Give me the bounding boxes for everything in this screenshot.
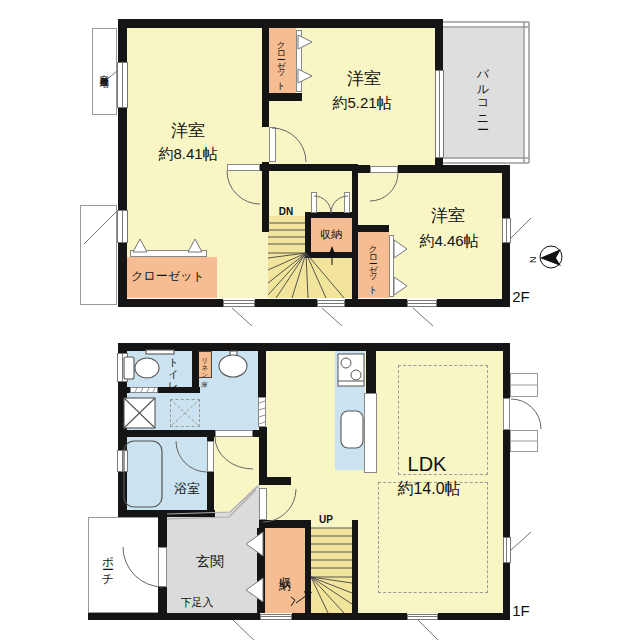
closet-left-front: [130, 250, 207, 257]
wall: [118, 510, 215, 517]
wall: [118, 243, 127, 306]
wall: [255, 299, 317, 307]
ldk-dashed-area-2: [378, 482, 488, 593]
door-leaf: [370, 166, 398, 173]
wall: [118, 343, 127, 353]
closet-446-label: クローゼット: [368, 238, 378, 289]
window: [502, 218, 511, 243]
wall: [292, 613, 407, 620]
wall: [262, 93, 302, 101]
window: [435, 70, 444, 158]
wall: [118, 19, 443, 28]
storage-1f-label: 収納: [277, 567, 291, 571]
exterior-steps-upper: [510, 373, 538, 397]
window: [407, 614, 438, 620]
ldk-size: 約14.0帖: [397, 480, 460, 498]
wall: [158, 587, 167, 613]
wall: [366, 343, 376, 393]
kitchen-counter-bar: [364, 393, 377, 473]
wall: [435, 28, 443, 70]
closet-left-label: クローゼット: [131, 270, 204, 284]
window: [117, 62, 128, 108]
wall: [398, 165, 510, 173]
window: [317, 300, 345, 307]
shoe-box-label: 下足入: [181, 596, 214, 609]
closet-top-label: クローゼット: [276, 34, 286, 85]
wall: [257, 528, 265, 613]
stairs-dn-label: DN: [279, 206, 293, 218]
wall: [438, 613, 510, 620]
storage-2f-label: 収納: [320, 228, 342, 241]
wall: [259, 477, 291, 485]
door-leaf: [503, 398, 510, 430]
wall: [260, 164, 356, 171]
floor-plan: N 洋室 約8.41帖 洋室 約5.21帖 洋室 約4.46帖 バルコニー クロ…: [0, 0, 640, 640]
room-446-name: 洋室: [431, 206, 465, 226]
floor1-label: 1F: [512, 602, 530, 619]
room-521-size: 約5.21帖: [332, 94, 391, 111]
outdoor-unit-label: 室外機置場: [99, 68, 109, 73]
wall: [88, 613, 260, 620]
door-leaf: [207, 441, 214, 472]
wall: [305, 252, 352, 258]
porch-label: ポーチ: [100, 547, 114, 580]
wall: [503, 343, 510, 398]
balcony-label: バルコニー: [475, 61, 489, 126]
room-446-size: 約4.46帖: [419, 232, 478, 249]
door-leaf: [158, 547, 167, 587]
wall: [118, 387, 130, 393]
window: [117, 210, 128, 243]
floor2-label: 2F: [512, 288, 530, 305]
window: [117, 353, 128, 382]
bath-floor: [127, 437, 207, 510]
stairs-2f-run: [268, 216, 305, 253]
wall: [435, 158, 443, 165]
toilet-label: トイレ: [167, 350, 179, 387]
window: [260, 614, 292, 620]
sliding-door: [130, 387, 158, 393]
wall: [503, 563, 510, 620]
closet-446-front: [389, 235, 394, 297]
wall: [258, 343, 266, 397]
closet-top-front: [296, 30, 302, 92]
sliding-door: [258, 397, 266, 427]
exterior-box: [80, 205, 117, 305]
porch-box: [88, 517, 160, 613]
wall: [253, 430, 265, 437]
wall: [305, 528, 311, 613]
wall: [118, 28, 127, 62]
window: [223, 300, 255, 307]
appliance-space-dashed: [170, 399, 200, 427]
window: [407, 300, 437, 307]
wall: [503, 430, 510, 537]
wall: [502, 243, 510, 306]
compass-icon: N: [528, 246, 562, 268]
wall: [118, 108, 127, 210]
room-521-name: 洋室: [347, 69, 381, 89]
wall: [118, 299, 223, 307]
wall: [358, 225, 389, 232]
wall: [207, 472, 214, 510]
linen-label: リネン庫: [201, 353, 208, 375]
ldk-name: LDK: [408, 453, 447, 476]
wall: [352, 164, 358, 306]
wall: [259, 520, 311, 528]
bath-label: 浴室: [174, 482, 200, 497]
wall: [158, 387, 200, 393]
genkan-label: 玄関: [196, 553, 224, 569]
room-841-name: 洋室: [171, 121, 205, 141]
wall: [352, 520, 358, 613]
wall: [262, 162, 269, 232]
wall: [262, 19, 269, 127]
window: [503, 537, 511, 563]
stairs-up-label: UP: [319, 514, 333, 526]
stairs-2f-winder: [268, 253, 352, 298]
stairs-1f: [311, 528, 352, 613]
door-leaf: [311, 192, 317, 213]
door-leaf: [269, 127, 276, 162]
door-leaf: [227, 164, 260, 171]
kitchen-counter: [335, 351, 365, 470]
compass-north-label: N: [528, 257, 538, 264]
exterior-steps-lower: [510, 430, 538, 452]
door-leaf: [259, 488, 267, 520]
wall: [437, 299, 510, 307]
room-841-size: 約8.41帖: [158, 145, 217, 162]
door-leaf: [215, 430, 253, 437]
wall: [118, 430, 215, 437]
wall: [158, 517, 167, 547]
window: [117, 450, 128, 472]
wall: [356, 165, 370, 173]
door-leaf: [344, 192, 350, 213]
wall: [192, 343, 199, 393]
